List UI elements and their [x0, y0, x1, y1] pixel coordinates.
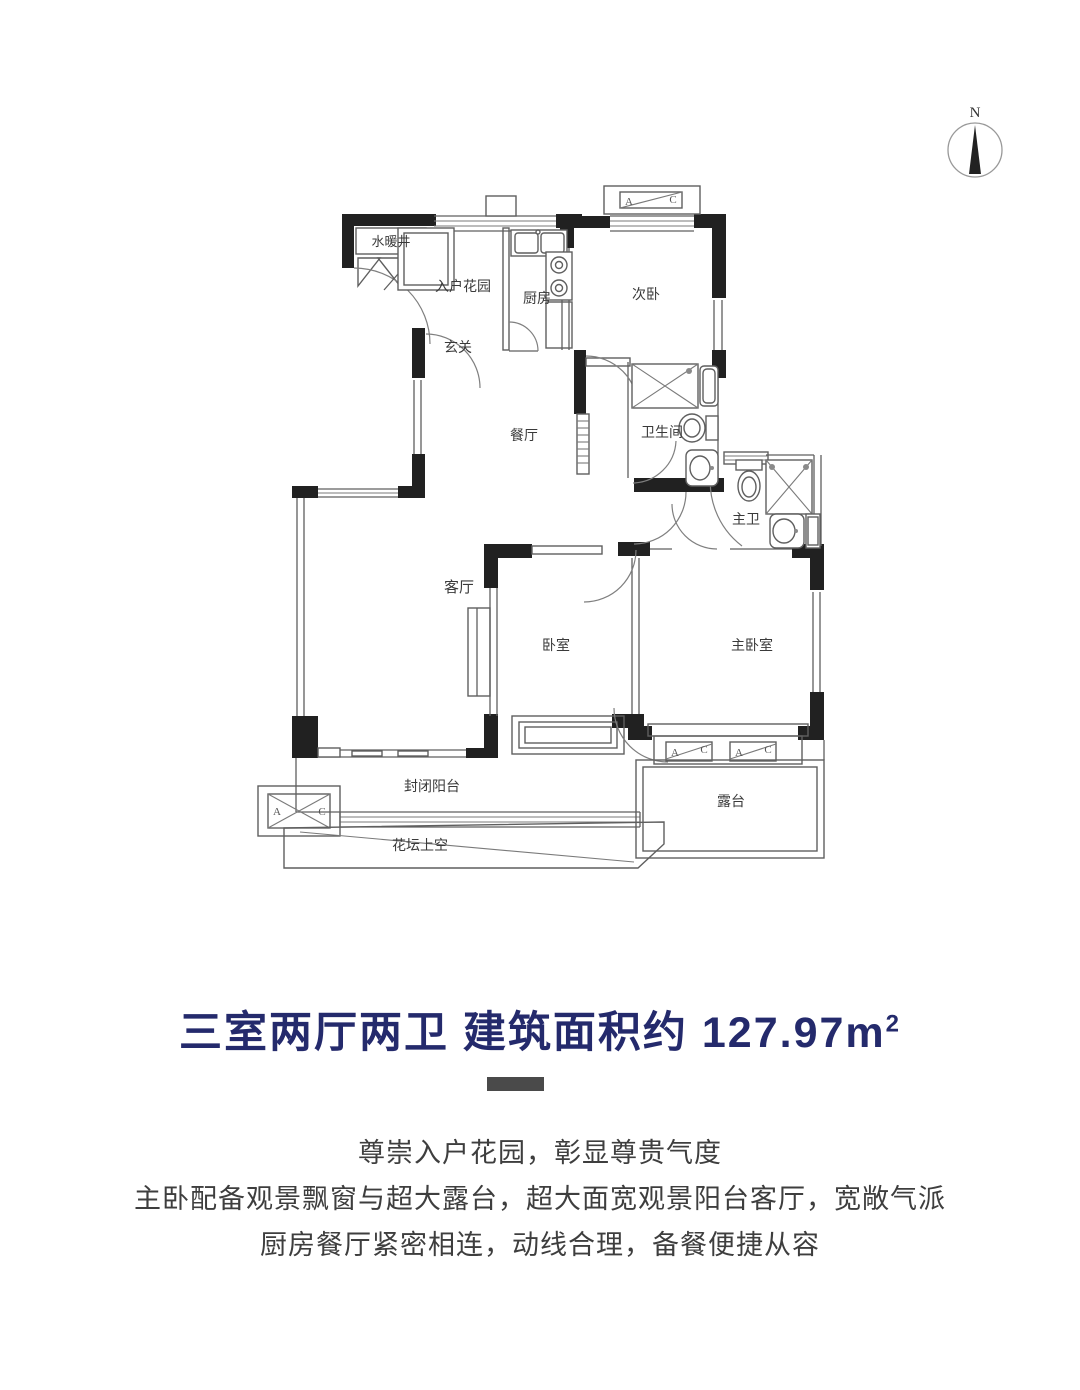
compass-icon: N	[948, 105, 1002, 177]
master-toilet-icon	[736, 460, 762, 501]
room-label-entry-garden: 入户花园	[435, 278, 491, 294]
ac-unit-icon: A C	[604, 186, 700, 214]
room-label-bedroom: 卧室	[542, 637, 570, 653]
ac-label-c: C	[700, 744, 707, 756]
room-label-foyer: 玄关	[444, 339, 472, 355]
room-label-terrace: 露台	[717, 793, 745, 809]
description-line-3: 厨房餐厅紧密相连，动线合理，备餐便捷从容	[0, 1222, 1080, 1268]
room-label-master-bedroom: 主卧室	[731, 637, 773, 653]
room-label-master-bath: 主卫	[732, 511, 760, 527]
description-line-1: 尊崇入户花园，彰显尊贵气度	[0, 1130, 1080, 1176]
ac-label-c: C	[318, 806, 325, 818]
page: A C A C A C A C N 水暖井 入户花园 厨	[0, 0, 1080, 1390]
ac-label-c: C	[764, 744, 771, 756]
shaft-ladder-icon	[577, 414, 589, 474]
ac-label-a: A	[735, 747, 743, 759]
toilet-icon	[679, 414, 718, 442]
tv-cabinet-icon	[468, 608, 490, 696]
room-label-enclosed-balcony: 封闭阳台	[404, 778, 460, 794]
flower-bed-outline	[284, 822, 664, 868]
master-basin-icon	[770, 514, 820, 548]
ac-label-c: C	[669, 194, 676, 206]
room-label-living: 客厅	[444, 579, 474, 596]
ac-label-a: A	[625, 196, 633, 208]
entry-porch	[486, 196, 516, 216]
description-line-2: 主卧配备观景飘窗与超大露台，超大面宽观景阳台客厅，宽敞气派	[0, 1176, 1080, 1222]
room-label-utility-shaft: 水暖井	[371, 234, 410, 249]
ac-label-a: A	[273, 806, 281, 818]
bay-window-bedroom	[512, 716, 624, 754]
bath-tub-icon	[700, 366, 718, 406]
room-label-flower-bed: 花坛上空	[392, 837, 448, 853]
plan-title: 三室两厅两卫 建筑面积约 127.97m2	[0, 998, 1080, 1060]
plan-title-sup: 2	[886, 1011, 901, 1038]
master-shower-icon	[766, 460, 812, 514]
room-label-dining: 餐厅	[510, 427, 538, 443]
title-divider	[487, 1077, 544, 1091]
room-label-second-bedroom: 次卧	[632, 286, 660, 302]
room-label-bathroom: 卫生间	[641, 424, 683, 440]
ac-unit-icon: A C	[666, 742, 712, 761]
ac-unit-icon: A C	[730, 742, 776, 761]
wash-basin-icon	[686, 450, 718, 486]
plan-title-text: 三室两厅两卫 建筑面积约 127.97m	[179, 1009, 886, 1057]
description: 尊崇入户花园，彰显尊贵气度 主卧配备观景飘窗与超大露台，超大面宽观景阳台客厅，宽…	[0, 1130, 1080, 1268]
compass-north-label: N	[970, 105, 981, 121]
ac-label-a: A	[671, 747, 679, 759]
room-label-kitchen: 厨房	[523, 290, 551, 306]
shower-icon	[632, 364, 698, 408]
